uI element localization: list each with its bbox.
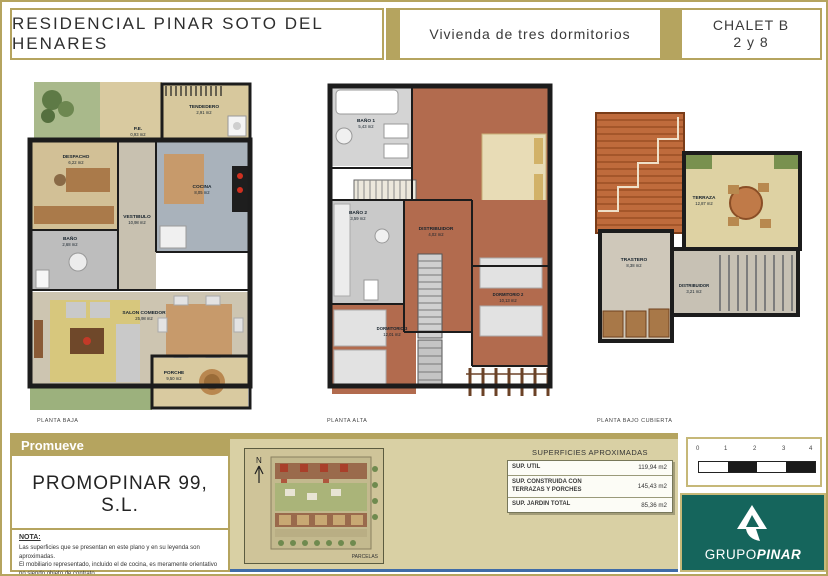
north-arrow-icon (255, 466, 263, 483)
surfaces-table: SUP. UTIL 119,94 m2 SUP. CONSTRUIDA CON … (507, 460, 673, 513)
promoter-box: Promueve PROMOPINAR 99, S.L. NOTA: Las s… (10, 433, 230, 572)
header-separator (662, 8, 680, 60)
scale-tick: 1 (724, 446, 727, 452)
svg-text:10,13 m2: 10,13 m2 (499, 298, 517, 303)
room-despacho: DESPACHO 6,22 m2 (32, 140, 118, 230)
planter-icon (686, 155, 712, 169)
toilet-icon (36, 270, 49, 288)
svg-text:2,68 m2: 2,68 m2 (62, 242, 78, 247)
bed-icon (334, 350, 386, 386)
plan-caption-planta-baja: PLANTA BAJA (37, 418, 78, 424)
note-line: Las superficies que se presentan en este… (19, 544, 223, 561)
dining-table-icon (166, 304, 232, 356)
svg-text:8,05 m2: 8,05 m2 (194, 190, 210, 195)
room-cocina: COCINA 8,05 m2 (156, 140, 248, 252)
pergola-icon (466, 366, 550, 396)
room-bano2: BAÑO 2 3,59 m2 (332, 200, 404, 304)
promoter-band-label: Promueve (21, 438, 84, 453)
sofa-icon (116, 324, 140, 382)
site-plan-caption: PARCELAS (352, 554, 379, 560)
surface-label: SUP. JARDIN TOTAL (508, 498, 619, 512)
svg-text:4,02 m2: 4,02 m2 (428, 232, 444, 237)
floor-plan-planta-baja: TENDEDERO 2,91 m2 P.E. 0,93 m2 DESPACHO … (14, 78, 257, 416)
toilet-icon (384, 124, 408, 138)
room-distribuidor-bc: DISTRIBUIDOR 3,21 m2 (672, 249, 798, 315)
header-chalet-box: CHALET B 2 y 8 (680, 8, 822, 60)
table-row: SUP. JARDIN TOTAL 85,36 m2 (508, 498, 672, 512)
room-tendedero: TENDEDERO 2,91 m2 (162, 84, 250, 140)
tv-cabinet-icon (34, 320, 43, 358)
surface-value: 145,43 m2 (619, 483, 672, 490)
crate-icon (626, 311, 646, 337)
basin-icon (375, 229, 389, 243)
bed-icon (480, 306, 542, 336)
scale-tick: 3 (782, 446, 785, 452)
surface-value: 119,94 m2 (619, 464, 672, 471)
plan-sheet-page: RESIDENCIAL PINAR SOTO DEL HENARES Vivie… (0, 0, 828, 576)
floor-plan-planta-alta: BAÑO 1 5,43 m2 DORMITORIO PRINCIPAL 11,7… (320, 78, 560, 416)
table-row: SUP. CONSTRUIDA CON TERRAZAS Y PORCHES 1… (508, 476, 672, 499)
site-plan-thumbnail: N PARCELAS (244, 448, 384, 564)
svg-text:8,38 m2: 8,38 m2 (626, 263, 642, 268)
scale-bar-box: 0 1 2 3 4 (686, 437, 822, 487)
svg-text:12,01 m2: 12,01 m2 (383, 332, 401, 337)
room-terraza: TERRAZA 12,87 m2 (684, 153, 800, 249)
surface-value: 85,36 m2 (619, 502, 672, 509)
basin-icon (69, 253, 87, 271)
room-trastero: TRASTERO 8,38 m2 (600, 231, 672, 341)
armchair-icon (66, 302, 86, 318)
surface-label: SUP. CONSTRUIDA CON TERRAZAS Y PORCHES (508, 476, 619, 498)
svg-text:10,98 m2: 10,98 m2 (128, 220, 146, 225)
basin-icon (336, 128, 352, 144)
armchair-icon (90, 302, 110, 318)
chalet-name: CHALET B (713, 17, 789, 35)
kitchen-table-icon (164, 154, 204, 204)
grupo-pinar-logo-box: GRUPOPINAR (680, 493, 826, 572)
logo-pinar: PINAR (757, 547, 802, 562)
scale-tick: 2 (753, 446, 756, 452)
note-line: El mobiliario representado, incluido el … (19, 561, 223, 576)
counter-icon (334, 204, 350, 296)
promoter-company: PROMOPINAR 99, S.L. (12, 473, 228, 517)
svg-text:0,93 m2: 0,93 m2 (130, 132, 146, 137)
north-label: N (256, 456, 262, 465)
sink-icon (160, 226, 186, 248)
svg-text:12,87 m2: 12,87 m2 (695, 201, 713, 206)
project-title: RESIDENCIAL PINAR SOTO DEL HENARES (12, 14, 382, 54)
sideboard-icon (34, 206, 114, 224)
planter-icon (774, 155, 798, 169)
dwelling-type: Vivienda de tres dormitorios (429, 26, 630, 42)
header-dwelling-box: Vivienda de tres dormitorios (398, 8, 662, 60)
wardrobe-icon (354, 180, 416, 200)
surfaces-title: SUPERFICIES APROXIMADAS (507, 448, 673, 457)
chair-icon (54, 174, 66, 186)
bidet-icon (384, 144, 408, 158)
room-vestibulo: VESTIBULO 10,98 m2 (118, 140, 156, 290)
note-block: NOTA: Las superficies que se presentan e… (19, 534, 223, 576)
cream-panel: N PARCELAS (230, 433, 678, 572)
table-row: SUP. UTIL 119,94 m2 (508, 461, 672, 476)
crate-icon (649, 309, 669, 337)
header-separator (386, 8, 398, 60)
svg-text:BAÑO: BAÑO (63, 235, 77, 242)
svg-text:5,43 m2: 5,43 m2 (358, 124, 374, 129)
pine-tree-icon (734, 503, 772, 543)
svg-text:DISTRIBUIDOR: DISTRIBUIDOR (679, 283, 709, 288)
plan-caption-planta-bajo-cubierta: PLANTA BAJO CUBIERTA (597, 418, 672, 424)
room-porche: PORCHE 9,50 m2 (152, 358, 248, 408)
scale-tick: 0 (696, 446, 699, 452)
note-title: NOTA: (19, 534, 223, 541)
logo-wordmark: GRUPOPINAR (705, 547, 802, 562)
svg-text:9,50 m2: 9,50 m2 (166, 376, 182, 381)
header-project-box: RESIDENCIAL PINAR SOTO DEL HENARES (10, 8, 384, 60)
floor-plan-planta-bajo-cubierta: TERRAZA 12,87 m2 TRASTERO 8,38 m2 DISTRI… (590, 105, 810, 405)
toilet-icon (364, 280, 378, 300)
svg-text:6,22 m2: 6,22 m2 (68, 160, 84, 165)
bathtub-icon (336, 90, 398, 114)
svg-text:2,91 m2: 2,91 m2 (196, 110, 212, 115)
divider (12, 528, 228, 530)
svg-text:3,59 m2: 3,59 m2 (350, 216, 366, 221)
scale-bar (698, 461, 816, 473)
svg-text:DORMITORIO 2: DORMITORIO 2 (493, 292, 524, 297)
svg-text:3,21 m2: 3,21 m2 (686, 289, 702, 294)
plan-caption-planta-alta: PLANTA ALTA (327, 418, 367, 424)
chalet-units: 2 y 8 (733, 34, 768, 52)
roof-tiles-icon (596, 113, 684, 233)
promoter-band: Promueve (12, 435, 228, 456)
surface-label: SUP. UTIL (508, 461, 619, 475)
desk-icon (66, 168, 110, 192)
logo-grupo: GRUPO (705, 547, 757, 562)
surfaces-section: SUPERFICIES APROXIMADAS SUP. UTIL 119,94… (507, 448, 673, 513)
crate-icon (603, 311, 623, 337)
room-dormitorio2: DORMITORIO 2 10,13 m2 (472, 200, 548, 366)
svg-text:BAÑO 2: BAÑO 2 (349, 209, 367, 216)
scale-tick: 4 (809, 446, 812, 452)
svg-text:25,98 m2: 25,98 m2 (135, 316, 153, 321)
svg-text:BAÑO 1: BAÑO 1 (357, 117, 375, 124)
bed-icon (480, 258, 542, 288)
room-bano1: BAÑO 1 5,43 m2 (332, 88, 412, 166)
site-layout (271, 457, 378, 549)
room-bano: BAÑO 2,68 m2 (32, 230, 118, 290)
